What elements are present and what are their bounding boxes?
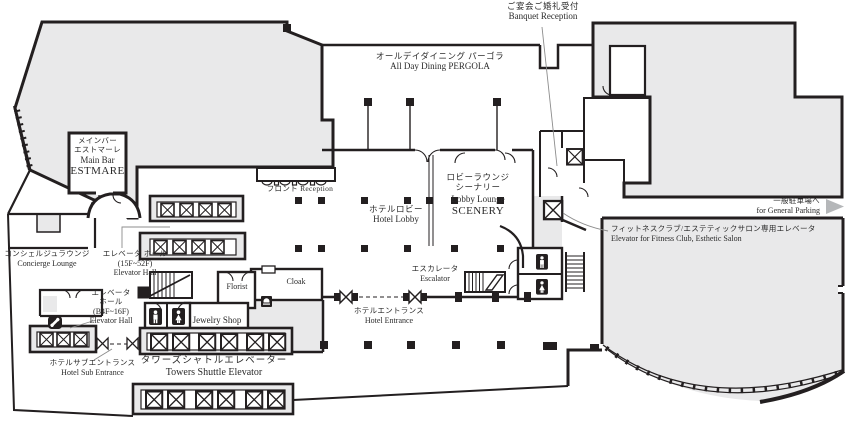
mens-restroom-icon [536, 254, 548, 270]
revolving-door-icon [340, 291, 352, 303]
elevator-icon [218, 392, 234, 408]
label-towers-shuttle-elevator: タワーズシャトルエレベーター Towers Shuttle Elevator [139, 356, 289, 379]
elevator-icon [168, 392, 184, 408]
door-swing-icon [495, 150, 505, 160]
womens-restroom-icon [172, 308, 185, 325]
hotel-sub-entrance-doors [97, 338, 138, 349]
door-swing-icon [62, 290, 84, 298]
label-florist: Florist [218, 282, 256, 291]
door-swing-icon [509, 260, 518, 294]
label-concierge-lounge: コンシェルジュラウンジ Concierge Lounge [2, 250, 92, 268]
elevator-icon [196, 392, 212, 408]
elevator-icon [268, 392, 284, 408]
elevator-icon [57, 333, 70, 346]
label-general-parking: 一般駐車場へ for General Parking [695, 197, 820, 215]
label-hotel-sub-entrance: ホテルサブエントランス Hotel Sub Entrance [35, 359, 150, 377]
label-hotel-lobby: ホテルロビー Hotel Lobby [354, 204, 438, 225]
telephone-icon [48, 316, 62, 329]
elevator-icon [199, 204, 212, 217]
dining-columns [364, 98, 501, 150]
elevator-icon [74, 333, 87, 346]
mens-restroom-icon [149, 308, 162, 325]
door-swing-icon [548, 168, 588, 197]
label-lobby-lounge: ロビーラウンジ シーナリー Lobby Lounge SCENERY [436, 172, 520, 218]
elevator-icon [269, 334, 285, 350]
elevator-icon [161, 204, 174, 217]
elevator-icon [192, 241, 205, 254]
parking-arrow-icon [826, 199, 844, 214]
label-elevator-hall-high: エレベータ ホール (15F~52F) Elevator Hall [95, 250, 175, 278]
label-main-bar: メインバー エストマーレ Main Bar ESTMARE [69, 137, 126, 178]
front-desk [257, 168, 335, 181]
label-cloak: Cloak [273, 277, 319, 286]
elevator-icon [567, 149, 583, 165]
hotel-floorplan: ご宴会ご婚礼受付 Banquet Reception オールデイダイニング パー… [0, 0, 850, 423]
elevator-icon [211, 241, 224, 254]
revolving-door-icon [409, 291, 421, 303]
label-escalator: エスカレータ Escalator [406, 265, 464, 283]
elevator-icon [544, 201, 562, 219]
label-banquet-reception: ご宴会ご婚礼受付 Banquet Reception [483, 1, 603, 22]
label-hotel-entrance: ホテルエントランス Hotel Entrance [349, 307, 429, 325]
door-swing-icon [415, 150, 440, 162]
label-jewelry-shop: Jewelry Shop [186, 315, 248, 326]
elevator-icon [151, 334, 167, 350]
label-front-reception: フロント Reception [260, 185, 340, 194]
elevator-icon [180, 204, 193, 217]
elevator-icon [173, 334, 189, 350]
label-fitness-elevator: フィットネスクラブ/エステティックサロン専用エレベータ Elevator for… [611, 225, 846, 243]
elevator-icon [247, 334, 263, 350]
elevator-icon [218, 204, 231, 217]
elevator-icon [246, 392, 262, 408]
revolving-door-icon [97, 338, 108, 349]
label-all-day-dining: オールデイダイニング パーゴラ All Day Dining PERGOLA [365, 51, 515, 72]
door-swing-icon [455, 153, 515, 163]
banquet-room [610, 46, 645, 95]
elevator-icon [40, 333, 53, 346]
elevator-icon [199, 334, 215, 350]
womens-restroom-icon [536, 279, 548, 295]
elevator-icon [146, 392, 162, 408]
elevator-icon [221, 334, 237, 350]
label-elevator-hall-low: エレベータ ホール (B4F~16F) Elevator Hall [82, 289, 140, 326]
stairs-icon [566, 252, 584, 292]
service-bell-icon [261, 296, 272, 307]
revolving-door-icon [127, 338, 138, 349]
